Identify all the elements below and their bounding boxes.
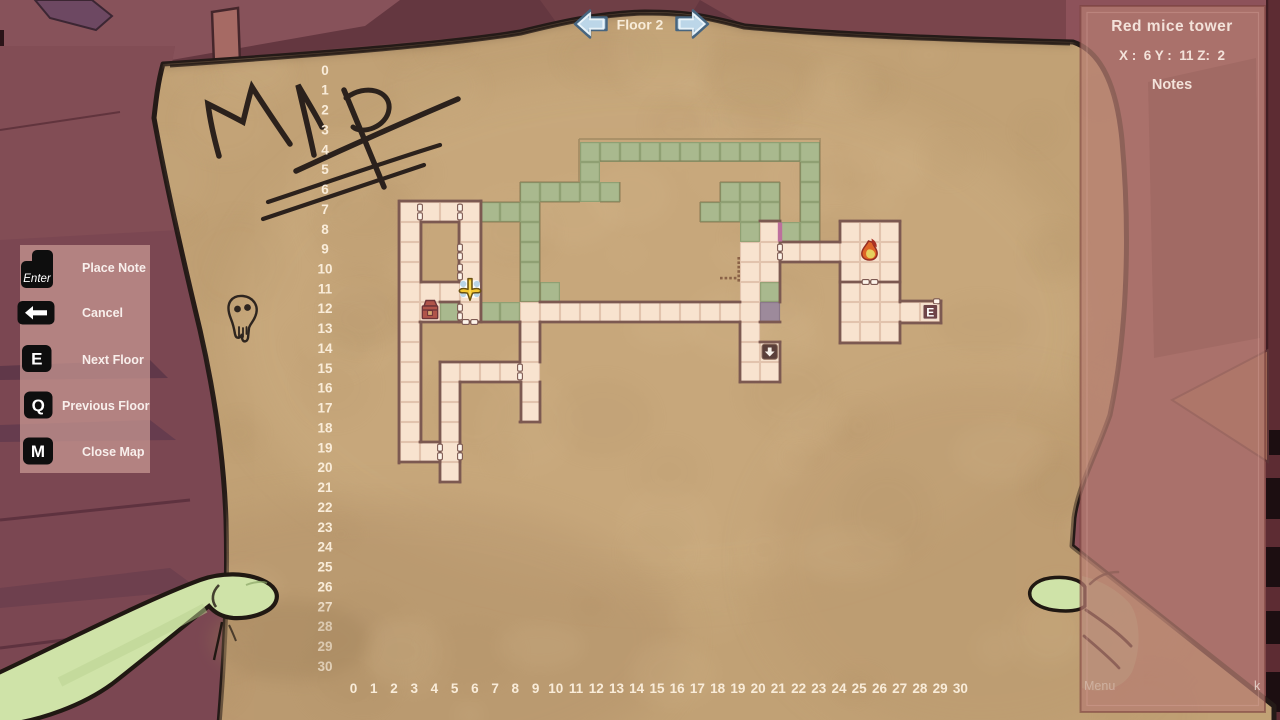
svg-text:18: 18 [710,681,726,696]
svg-text:2: 2 [390,681,398,696]
svg-text:12: 12 [589,681,604,696]
svg-text:21: 21 [771,681,787,696]
svg-text:29: 29 [933,681,948,696]
svg-text:3: 3 [410,681,418,696]
svg-text:4: 4 [321,142,329,157]
svg-text:Q: Q [32,396,45,415]
svg-text:25: 25 [317,560,333,575]
svg-text:30: 30 [953,681,968,696]
svg-text:14: 14 [317,341,333,356]
svg-text:9: 9 [532,681,540,696]
svg-text:Enter: Enter [23,273,52,285]
svg-text:Place Note: Place Note [82,261,146,275]
svg-text:19: 19 [317,440,332,455]
svg-text:k: k [1254,679,1261,693]
svg-text:10: 10 [548,681,563,696]
svg-text:24: 24 [831,681,847,696]
svg-text:27: 27 [892,681,907,696]
svg-text:4: 4 [431,681,439,696]
svg-text:7: 7 [491,681,499,696]
svg-text:13: 13 [317,321,333,336]
svg-text:Cancel: Cancel [82,306,123,320]
svg-text:11: 11 [318,281,333,296]
svg-text:5: 5 [321,162,329,177]
svg-text:10: 10 [317,262,332,277]
svg-text:8: 8 [321,222,329,237]
svg-text:0: 0 [350,681,358,696]
svg-text:Next Floor: Next Floor [82,353,144,367]
svg-text:23: 23 [811,681,827,696]
svg-text:13: 13 [609,681,625,696]
svg-text:24: 24 [317,540,333,555]
svg-text:Red mice tower: Red mice tower [1111,18,1233,35]
svg-text:11: 11 [569,681,584,696]
svg-text:3: 3 [321,122,329,137]
svg-text:22: 22 [791,681,806,696]
svg-text:26: 26 [317,579,333,594]
svg-text:17: 17 [690,681,705,696]
svg-text:Previous Floor: Previous Floor [62,399,150,413]
svg-text:0: 0 [321,63,329,78]
svg-text:5: 5 [451,681,459,696]
svg-text:16: 16 [670,681,686,696]
svg-text:15: 15 [317,361,333,376]
svg-text:E: E [31,350,42,369]
svg-text:28: 28 [912,681,928,696]
svg-text:Notes: Notes [1152,77,1192,93]
svg-text:7: 7 [321,202,329,217]
svg-text:E: E [926,306,934,320]
svg-text:Close Map: Close Map [82,445,145,459]
svg-text:12: 12 [317,301,332,316]
svg-text:16: 16 [317,381,333,396]
svg-text:6: 6 [471,681,479,696]
svg-text:X : 6 Y : 11 Z: 2: X : 6 Y : 11 Z: 2 [1119,48,1225,63]
svg-text:21: 21 [317,480,333,495]
svg-text:19: 19 [730,681,745,696]
svg-text:17: 17 [317,401,332,416]
svg-text:9: 9 [321,242,329,257]
svg-text:15: 15 [649,681,665,696]
svg-text:18: 18 [317,421,333,436]
svg-text:22: 22 [317,500,332,515]
svg-text:2: 2 [321,103,329,118]
svg-text:25: 25 [852,681,868,696]
svg-text:20: 20 [317,460,332,475]
svg-text:Floor 2: Floor 2 [617,17,664,33]
svg-text:26: 26 [872,681,888,696]
svg-text:1: 1 [321,83,329,98]
svg-text:23: 23 [317,520,333,535]
svg-text:14: 14 [629,681,645,696]
svg-text:8: 8 [512,681,520,696]
svg-text:20: 20 [751,681,766,696]
svg-text:M: M [31,442,45,461]
svg-text:6: 6 [321,182,329,197]
svg-text:1: 1 [370,681,378,696]
svg-text:Menu: Menu [1084,679,1115,693]
